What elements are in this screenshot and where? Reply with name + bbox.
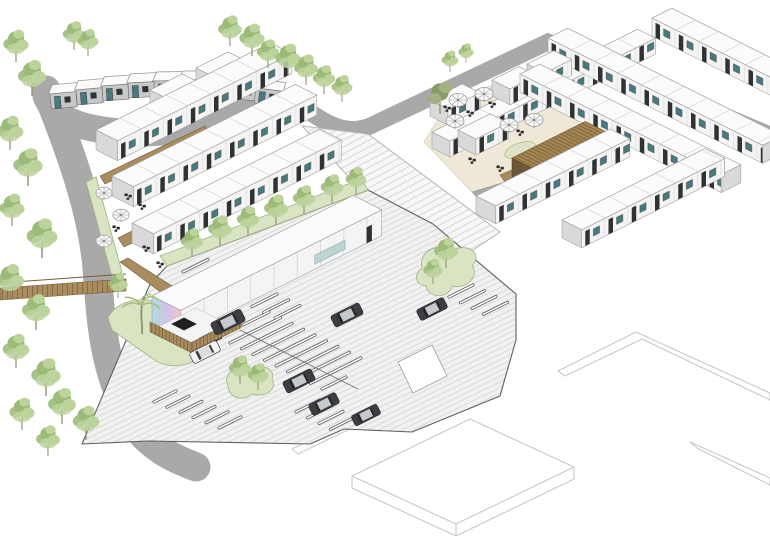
site-plan-rendering: Isometric site-plan rendering — modular … [0,0,770,550]
